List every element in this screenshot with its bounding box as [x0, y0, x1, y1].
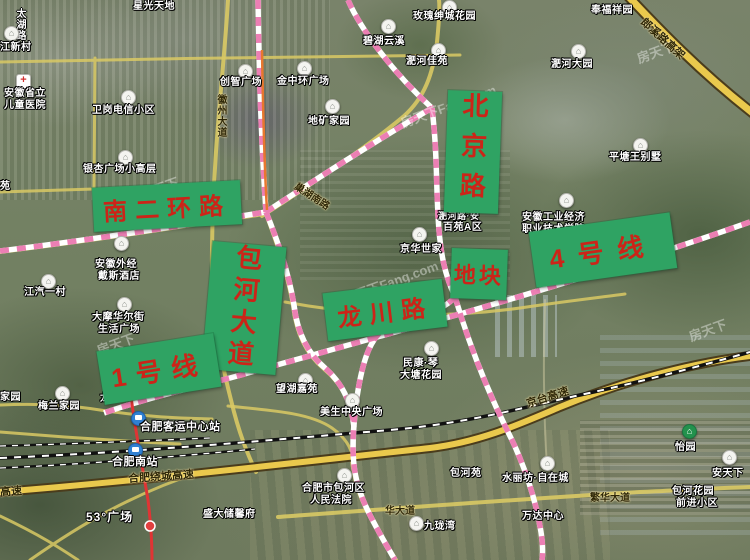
- hospital-icon[interactable]: +: [16, 74, 31, 89]
- poi-label: 百苑A区: [443, 222, 482, 233]
- poi-label-partial: 苑: [0, 181, 11, 192]
- house-pin-icon[interactable]: ⌂: [337, 468, 352, 483]
- house-pin-icon[interactable]: ⌂: [412, 227, 427, 242]
- map-canvas[interactable]: 房天下 房天下Fang.com 房天下Fang.com 房天下 房天下 房天下 …: [0, 0, 750, 560]
- poi-label: 前进小区: [676, 498, 718, 509]
- poi-label: 大塘花园: [400, 370, 442, 381]
- road-label-fanhua-avenue: 繁华大道: [590, 489, 630, 504]
- road-label-huizhou-dadao: 徽州大道: [213, 94, 228, 138]
- green-pin-icon[interactable]: ⌂: [682, 424, 697, 439]
- poi-label: 戴斯酒店: [98, 271, 140, 282]
- poi-label: 平塘王别墅: [609, 152, 662, 163]
- poi-label: 53°广场: [86, 512, 133, 523]
- poi-label: 怡园: [675, 442, 696, 453]
- green-label-beijing-road: 北京路: [444, 90, 502, 214]
- poi-label: 人民法院: [310, 495, 352, 506]
- poi-label: 万达中心: [522, 511, 564, 522]
- poi-label: 包河苑: [450, 468, 482, 479]
- metro-station-marker[interactable]: [145, 521, 155, 531]
- road-label-fanhua-avenue-partial: 华大道: [385, 502, 415, 517]
- poi-label: 创智广场: [220, 77, 262, 88]
- house-pin-icon[interactable]: ⌂: [633, 138, 648, 153]
- house-pin-icon[interactable]: ⌂: [424, 341, 439, 356]
- road-label-expressway-partial: 高速: [0, 482, 23, 499]
- poi-label: 合肥市包河区: [302, 483, 365, 494]
- poi-label: 安徽外经: [95, 259, 137, 270]
- house-pin-icon[interactable]: ⌂: [345, 393, 360, 408]
- poi-label: 大摩华尔街: [92, 312, 145, 323]
- poi-label: 淝河大园: [551, 59, 593, 70]
- poi-label: 儿童医院: [4, 100, 46, 111]
- poi-label: 地矿家园: [308, 116, 350, 127]
- house-pin-icon[interactable]: ⌂: [118, 150, 133, 165]
- green-label-land-parcel: 地块: [450, 248, 508, 300]
- poi-label: 银杏广场小高层: [83, 164, 157, 175]
- house-pin-icon[interactable]: ⌂: [722, 450, 737, 465]
- house-pin-icon[interactable]: ⌂: [325, 99, 340, 114]
- house-pin-icon[interactable]: ⌂: [571, 44, 586, 59]
- poi-label: 玫瑰绅城花园: [413, 11, 476, 22]
- poi-label: 奉福祥园: [591, 5, 633, 16]
- poi-label: 望湖嘉苑: [276, 384, 318, 395]
- poi-label: 包河花园: [672, 486, 714, 497]
- poi-label: 美生中央广场: [320, 407, 383, 418]
- poi-label: 卫岗电信小区: [92, 105, 155, 116]
- green-label-south-2nd-ring-road: 南二环路: [92, 180, 242, 232]
- poi-label: 生活广场: [98, 324, 140, 335]
- poi-label: 安徽工业经济: [522, 212, 585, 223]
- house-pin-icon[interactable]: ⌂: [381, 19, 396, 34]
- poi-label: 安徽省立: [4, 88, 46, 99]
- poi-label: 安天下: [712, 468, 744, 479]
- poi-label-partial: 家园: [0, 392, 21, 403]
- house-pin-icon[interactable]: ⌂: [114, 236, 129, 251]
- station-label-coach-terminal[interactable]: 合肥客运中心站: [140, 422, 221, 433]
- house-pin-icon[interactable]: ⌂: [559, 193, 574, 208]
- house-pin-icon[interactable]: ⌂: [117, 297, 132, 312]
- poi-label: 京华世家: [400, 244, 442, 255]
- poi-label: 梅兰家园: [38, 401, 80, 412]
- poi-label: 江汽一村: [24, 287, 66, 298]
- poi-label: 九珑湾: [424, 521, 456, 532]
- poi-label: 碧湖云溪: [363, 36, 405, 47]
- house-pin-icon[interactable]: ⌂: [540, 456, 555, 471]
- poi-label: 金中环广场: [277, 76, 330, 87]
- poi-label: 淝河佳苑: [406, 56, 448, 67]
- poi-label: 盛大储馨府: [203, 509, 256, 520]
- house-pin-icon[interactable]: ⌂: [55, 386, 70, 401]
- station-label-hefei-south[interactable]: 合肥南站: [112, 457, 158, 468]
- house-pin-icon[interactable]: ⌂: [4, 26, 19, 41]
- poi-label: 水丽坊·自在城: [502, 473, 569, 484]
- house-pin-icon[interactable]: ⌂: [409, 516, 424, 531]
- house-pin-icon[interactable]: ⌂: [121, 90, 136, 105]
- poi-label: 民康·琴: [403, 358, 438, 369]
- poi-label: 星光天地: [133, 1, 175, 12]
- poi-label: 江新村: [0, 42, 32, 53]
- house-pin-icon[interactable]: ⌂: [297, 61, 312, 76]
